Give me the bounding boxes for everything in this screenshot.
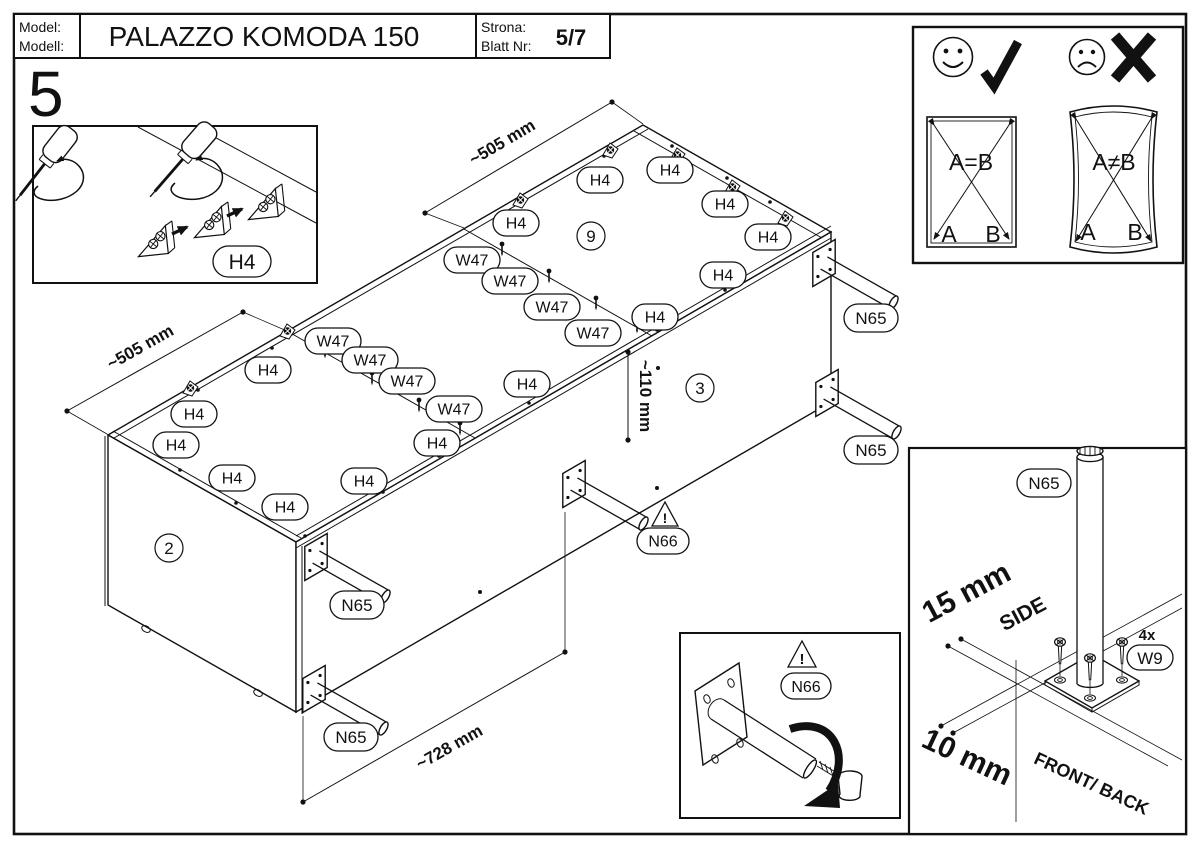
sad-face-icon — [1070, 40, 1105, 75]
dimension-text: ~110 mm — [636, 360, 655, 432]
svg-text:3: 3 — [695, 379, 704, 398]
svg-text:H4: H4 — [713, 268, 734, 285]
model-title: PALAZZO KOMODA 150 — [109, 21, 420, 52]
n66-labels: N66 — [637, 528, 689, 554]
corner-a-label: A — [941, 221, 957, 247]
svg-text:N65: N65 — [855, 441, 886, 460]
title-block: Model: Modell: PALAZZO KOMODA 150 Strona… — [14, 14, 610, 58]
step-number: 5 — [28, 58, 64, 130]
svg-text:H4: H4 — [166, 438, 187, 455]
svg-text:H4: H4 — [715, 197, 736, 214]
model-label-line2: Modell: — [19, 38, 64, 54]
svg-text:H4: H4 — [258, 363, 279, 380]
leg-cylinder — [1077, 446, 1103, 687]
svg-text:H4: H4 — [229, 251, 256, 274]
svg-text:H4: H4 — [660, 163, 681, 180]
svg-text:9: 9 — [586, 227, 595, 246]
svg-text:W47: W47 — [536, 300, 569, 317]
hardware-label-h4: H4 — [700, 262, 746, 288]
svg-text:W47: W47 — [317, 334, 350, 351]
hardware-label-h4: H4 — [171, 401, 217, 427]
hardware-label-h4: H4 — [414, 430, 460, 456]
part-number-badge: 9 — [577, 222, 605, 250]
page-label-line1: Strona: — [481, 19, 526, 35]
hardware-label-n65: N65 — [330, 591, 384, 619]
svg-text:H4: H4 — [517, 377, 538, 394]
svg-text:W9: W9 — [1137, 649, 1163, 668]
part-number-badge: 2 — [155, 534, 183, 562]
hardware-label-h4: H4 — [245, 357, 291, 383]
svg-text:N65: N65 — [1028, 474, 1059, 493]
svg-text:H4: H4 — [184, 407, 205, 424]
hardware-label-n65: N65 — [844, 436, 898, 464]
svg-text:N65: N65 — [855, 309, 886, 328]
hardware-label-h4: H4 — [493, 210, 539, 236]
hardware-label-h4: H4 — [209, 465, 255, 491]
hardware-label-n66: N66 — [781, 673, 831, 699]
hardware-label-w47: W47 — [482, 268, 538, 294]
inset-corner-blocks: H4 — [7, 119, 317, 283]
hardware-label-h4: H4 — [745, 224, 791, 250]
svg-text:H4: H4 — [506, 216, 527, 233]
hardware-label-n65: N65 — [844, 304, 898, 332]
hardware-label-w47: W47 — [565, 320, 621, 346]
svg-text:N66: N66 — [791, 679, 820, 696]
corner-b-label: B — [1127, 219, 1142, 245]
svg-text:H4: H4 — [645, 310, 666, 327]
svg-text:W47: W47 — [494, 274, 527, 291]
inset-adjustable-foot: ! N66 — [680, 633, 900, 818]
svg-text:W47: W47 — [456, 253, 489, 270]
svg-text:N65: N65 — [335, 728, 366, 747]
inset-diagonal-check: A=B A B A≠B A B — [913, 27, 1183, 263]
hardware-label-h4: H4 — [702, 191, 748, 217]
svg-text:W47: W47 — [438, 402, 471, 419]
quantity-label: 4x — [1139, 627, 1156, 644]
corner-b-label: B — [985, 221, 1000, 247]
svg-text:W47: W47 — [577, 326, 610, 343]
page-number-value: 5/7 — [556, 25, 587, 50]
svg-text:N65: N65 — [341, 596, 372, 615]
part-number-badge: 3 — [686, 374, 714, 402]
hardware-label-n65: N65 — [324, 723, 378, 751]
formula-ok: A=B — [949, 149, 993, 175]
hardware-label-w9: W9 — [1127, 645, 1173, 670]
hardware-label-n66: N66 — [637, 528, 689, 554]
hardware-label-h4: H4 — [213, 246, 271, 277]
svg-text:H4: H4 — [354, 474, 375, 491]
formula-bad: A≠B — [1092, 149, 1135, 175]
svg-text:W47: W47 — [354, 353, 387, 370]
hardware-label-h4: H4 — [153, 432, 199, 458]
adjustable-foot-disc — [838, 771, 862, 800]
hardware-label-h4: H4 — [262, 494, 308, 520]
svg-text:!: ! — [663, 510, 668, 526]
model-label-line1: Model: — [19, 19, 61, 35]
corner-a-label: A — [1080, 219, 1096, 245]
hardware-label-w47: W47 — [426, 396, 482, 422]
svg-text:H4: H4 — [758, 230, 779, 247]
hardware-label-h4: H4 — [632, 304, 678, 330]
svg-text:W47: W47 — [391, 374, 424, 391]
svg-text:H4: H4 — [427, 436, 448, 453]
svg-text:H4: H4 — [222, 471, 243, 488]
svg-text:H4: H4 — [275, 500, 296, 517]
hardware-label-h4: H4 — [647, 157, 693, 183]
page-label-line2: Blatt Nr: — [481, 38, 532, 54]
svg-text:N66: N66 — [648, 534, 677, 551]
svg-text:!: ! — [800, 651, 805, 668]
hardware-label-n65: N65 — [1017, 469, 1071, 497]
hardware-label-h4: H4 — [504, 371, 550, 397]
assembly-instruction-page: Model: Modell: PALAZZO KOMODA 150 Strona… — [0, 0, 1200, 849]
hardware-label-w47: W47 — [524, 294, 580, 320]
svg-text:2: 2 — [164, 539, 173, 558]
hardware-label-h4: H4 — [341, 468, 387, 494]
hardware-label-h4: H4 — [577, 167, 623, 193]
happy-face-icon — [934, 38, 973, 77]
hardware-label-w47: W47 — [379, 368, 435, 394]
inset-leg-mounting: N65 4x W9 15 mm SIDE 10 mm FRONT/ BACK — [909, 446, 1186, 834]
svg-text:H4: H4 — [590, 173, 611, 190]
